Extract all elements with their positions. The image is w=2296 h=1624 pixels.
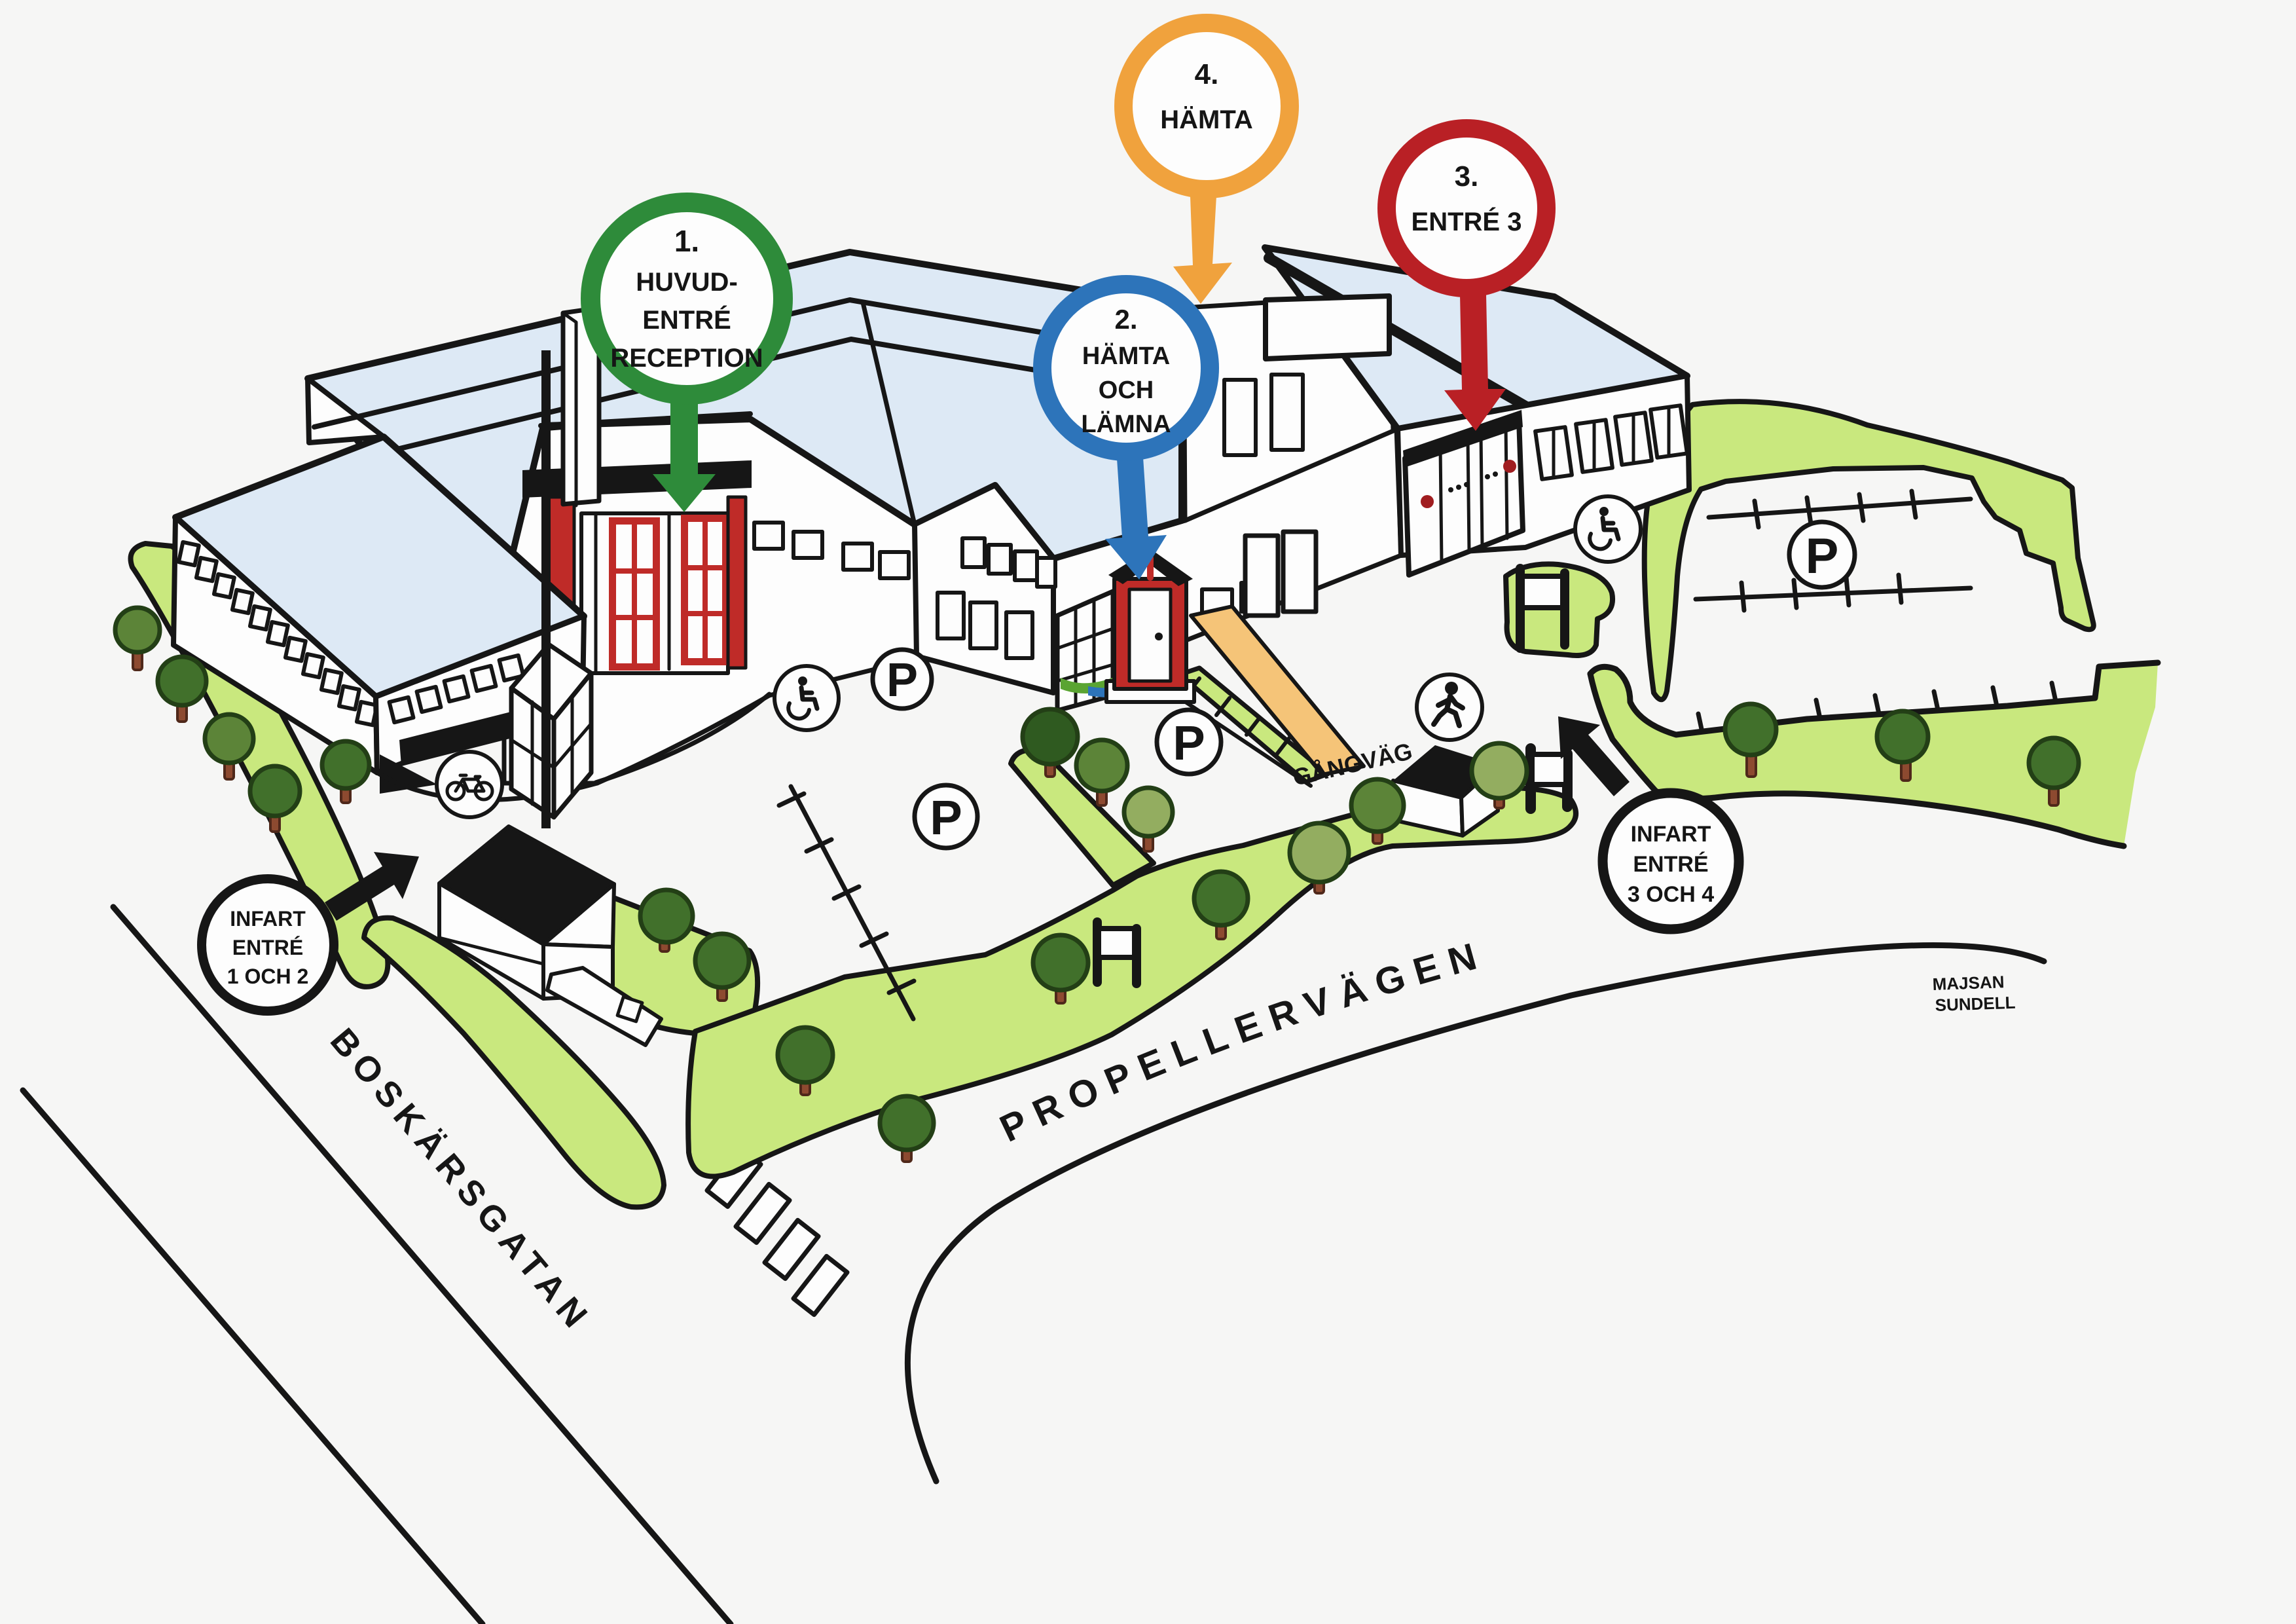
svg-text:3 OCH 4: 3 OCH 4 — [1628, 882, 1714, 907]
svg-text:1.: 1. — [674, 224, 699, 258]
svg-text:HÄMTA: HÄMTA — [1082, 342, 1170, 370]
svg-text:P: P — [1173, 716, 1205, 770]
svg-text:LÄMNA: LÄMNA — [1081, 410, 1171, 438]
svg-text:P: P — [886, 654, 918, 707]
svg-text:ENTRÉ: ENTRÉ — [642, 305, 731, 335]
svg-text:HÄMTA: HÄMTA — [1160, 105, 1252, 134]
svg-text:4.: 4. — [1195, 58, 1219, 90]
svg-text:ENTRÉ 3: ENTRÉ 3 — [1412, 207, 1522, 236]
svg-text:OCH: OCH — [1099, 377, 1154, 404]
svg-text:2.: 2. — [1114, 304, 1137, 335]
svg-text:1 OCH 2: 1 OCH 2 — [227, 965, 308, 988]
svg-text:RECEPTION: RECEPTION — [610, 344, 763, 373]
svg-text:P: P — [1806, 528, 1839, 584]
svg-text:MAJSAN: MAJSAN — [1932, 972, 2005, 994]
svg-text:ENTRÉ: ENTRÉ — [232, 936, 303, 959]
svg-text:SUNDELL: SUNDELL — [1935, 993, 2016, 1015]
svg-text:INFART: INFART — [230, 907, 306, 931]
svg-text:3.: 3. — [1455, 160, 1479, 193]
svg-text:HUVUD-: HUVUD- — [636, 268, 738, 297]
svg-text:ENTRÉ: ENTRÉ — [1633, 852, 1708, 877]
svg-text:P: P — [930, 790, 962, 845]
svg-text:INFART: INFART — [1631, 822, 1711, 847]
